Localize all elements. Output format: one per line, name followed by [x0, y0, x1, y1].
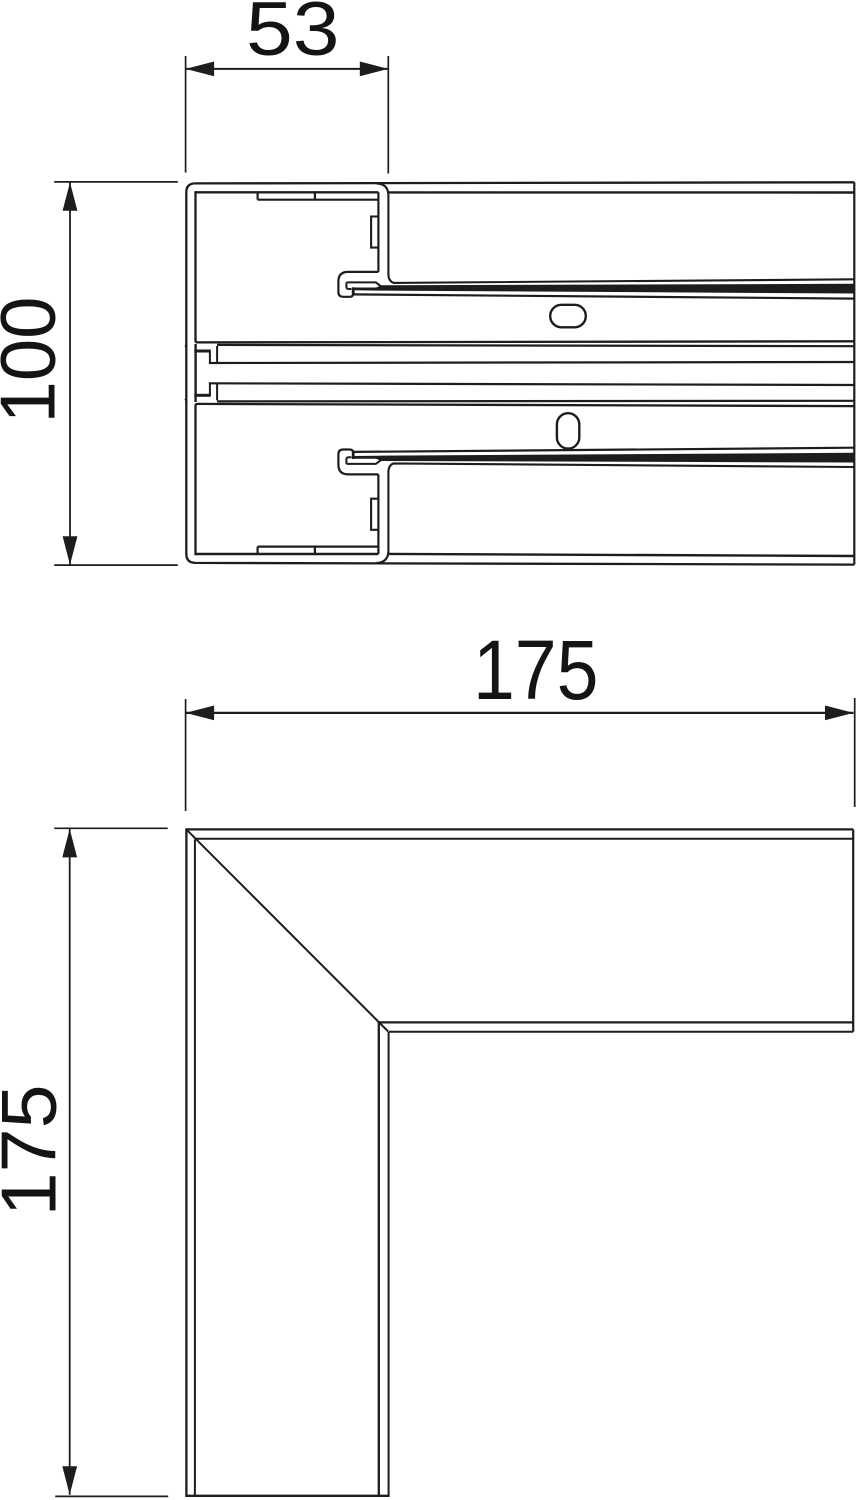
- svg-text:175: 175: [473, 623, 599, 717]
- svg-text:100: 100: [0, 297, 72, 424]
- svg-text:175: 175: [0, 1084, 72, 1216]
- svg-text:53: 53: [246, 0, 340, 72]
